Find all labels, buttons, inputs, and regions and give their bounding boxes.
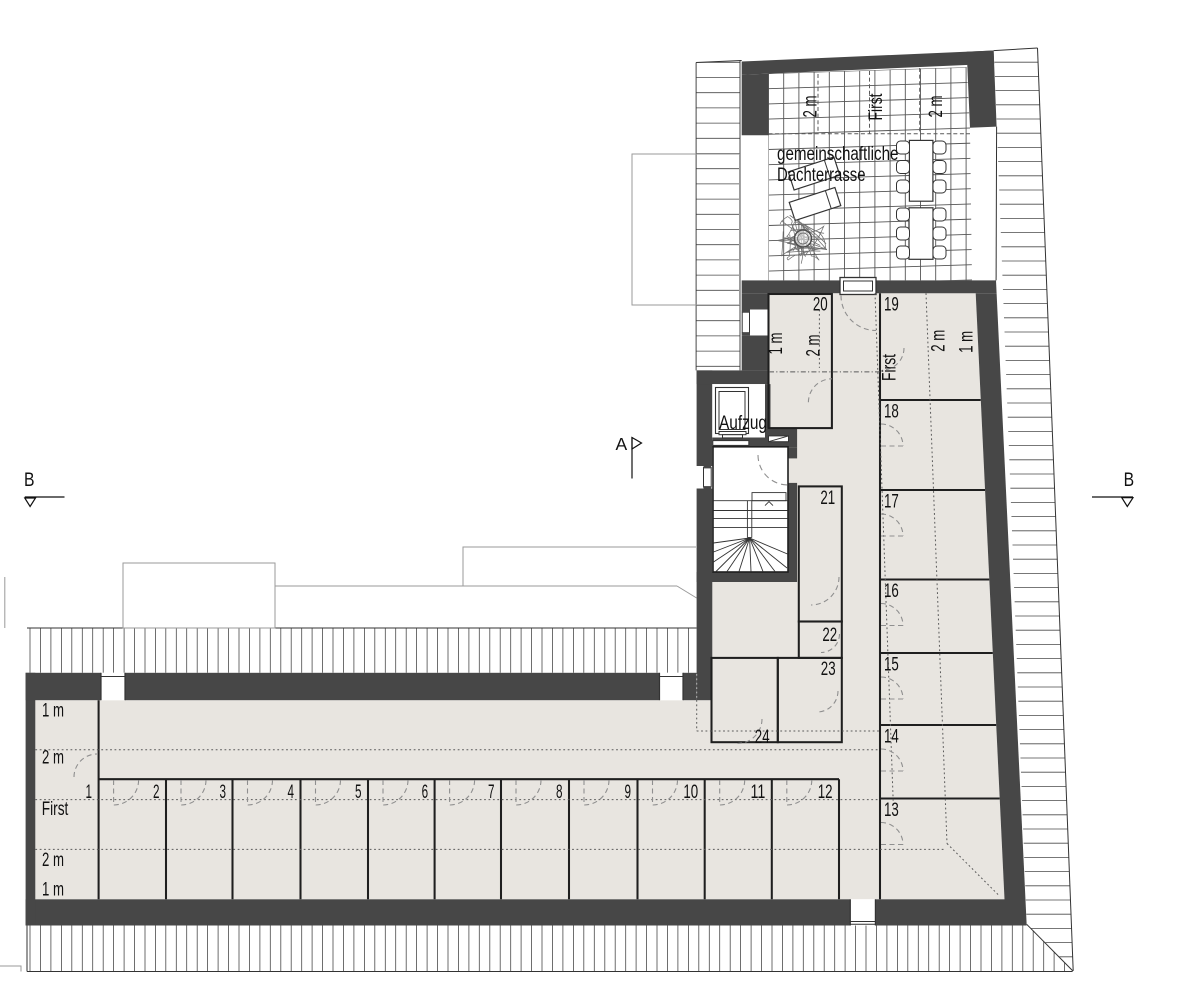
svg-text:2 m: 2 m [928, 330, 950, 352]
svg-text:16: 16 [884, 581, 899, 602]
svg-text:7: 7 [488, 782, 495, 803]
svg-text:2 m: 2 m [800, 96, 822, 118]
svg-text:4: 4 [288, 782, 295, 803]
svg-text:Aufzug: Aufzug [719, 413, 767, 434]
svg-text:23: 23 [821, 659, 836, 680]
svg-text:2: 2 [153, 782, 160, 803]
svg-text:18: 18 [884, 402, 899, 423]
svg-text:8: 8 [556, 782, 563, 803]
svg-text:1 m: 1 m [42, 700, 64, 722]
svg-text:13: 13 [884, 800, 899, 821]
svg-text:24: 24 [755, 727, 770, 748]
svg-text:1 m: 1 m [956, 331, 978, 353]
svg-text:First: First [42, 798, 69, 820]
svg-text:20: 20 [813, 295, 828, 316]
svg-text:gemeinschaftliche: gemeinschaftliche [777, 143, 899, 165]
svg-text:17: 17 [884, 492, 899, 513]
svg-text:1 m: 1 m [42, 879, 64, 901]
svg-text:14: 14 [884, 727, 899, 748]
svg-text:B: B [24, 470, 35, 491]
svg-text:10: 10 [683, 782, 698, 803]
svg-text:9: 9 [625, 782, 632, 803]
svg-text:A: A [616, 434, 628, 454]
svg-text:B: B [1124, 470, 1135, 491]
svg-text:2 m: 2 m [42, 849, 64, 871]
svg-text:5: 5 [355, 782, 362, 803]
svg-text:19: 19 [884, 295, 899, 316]
svg-text:2 m: 2 m [925, 96, 947, 118]
svg-text:22: 22 [822, 625, 837, 646]
svg-text:3: 3 [220, 782, 227, 803]
svg-text:21: 21 [820, 488, 835, 509]
svg-text:15: 15 [884, 655, 899, 676]
svg-text:First: First [865, 93, 887, 120]
svg-text:1: 1 [86, 782, 93, 803]
svg-text:First: First [879, 354, 901, 381]
svg-text:11: 11 [751, 782, 766, 803]
svg-text:Dachterrasse: Dachterrasse [777, 164, 866, 186]
svg-text:12: 12 [818, 782, 833, 803]
svg-text:2 m: 2 m [42, 747, 64, 769]
svg-text:6: 6 [422, 782, 429, 803]
svg-text:1 m: 1 m [765, 333, 787, 355]
svg-text:2 m: 2 m [802, 335, 824, 357]
